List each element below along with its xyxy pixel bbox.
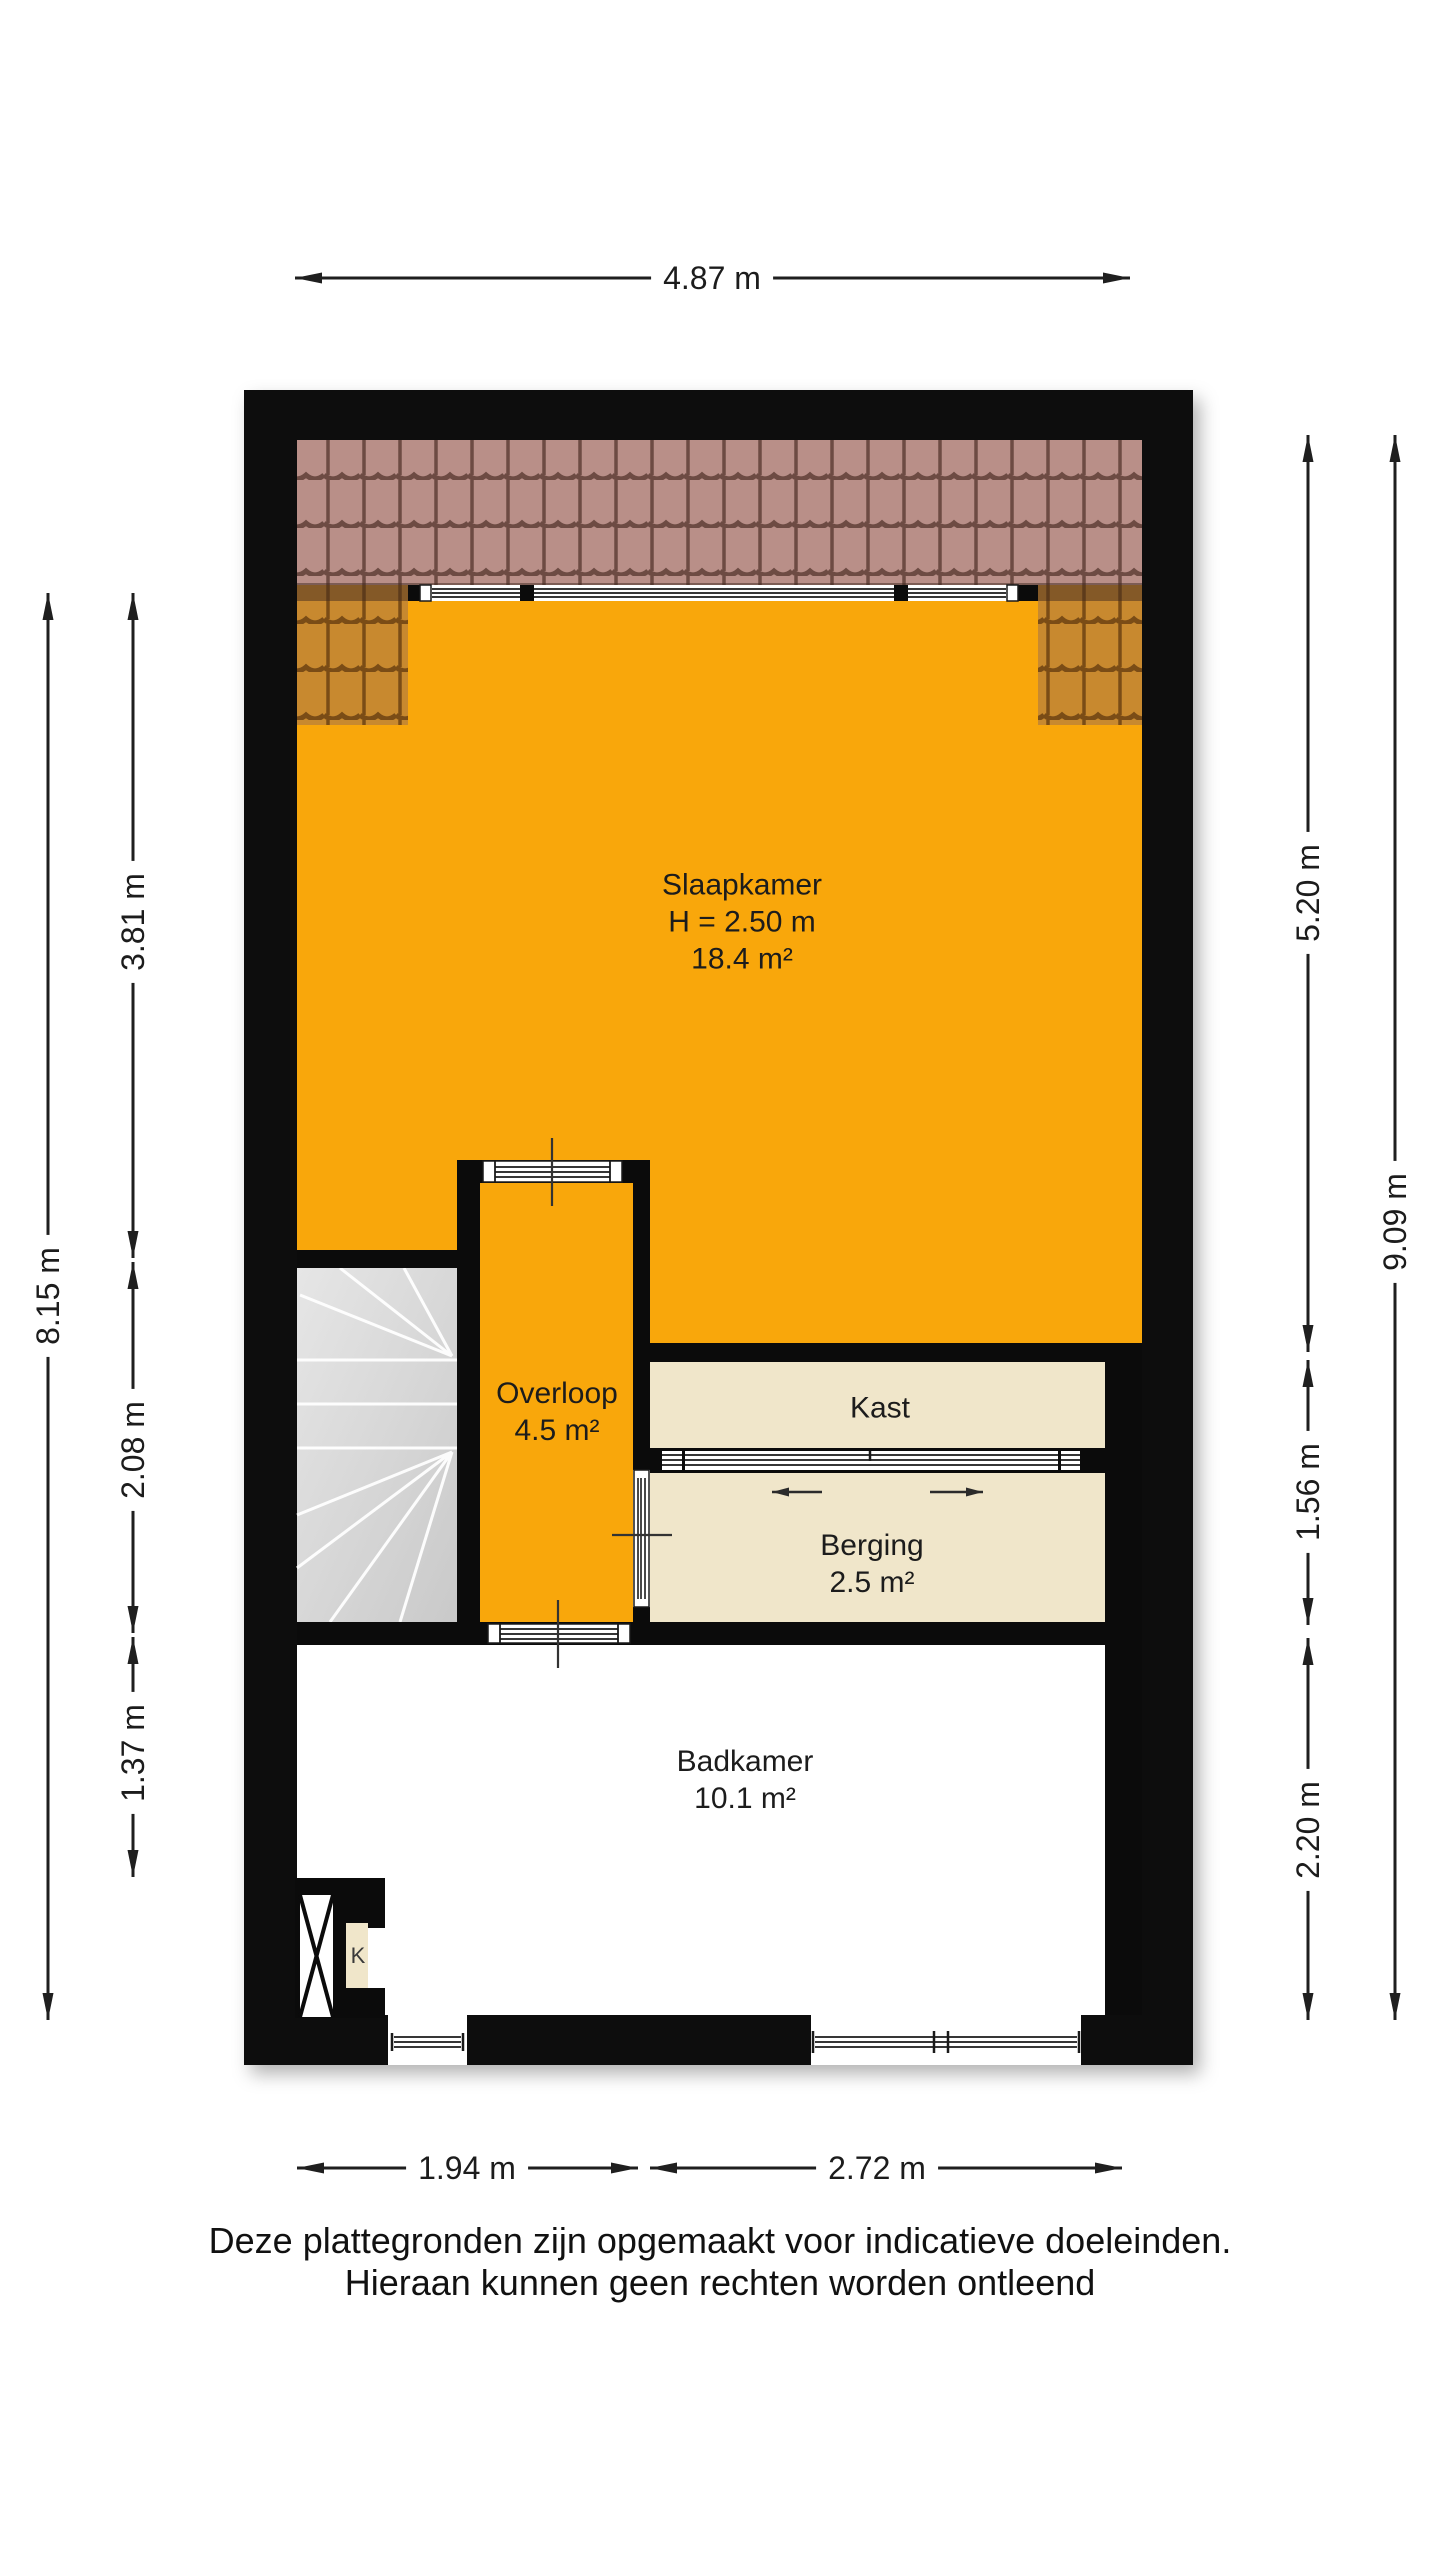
dim-bottom-seg1: 1.94 m bbox=[406, 2148, 528, 2188]
duct-shaft bbox=[295, 1878, 385, 2018]
berging-area: 2.5 m² bbox=[820, 1564, 923, 1601]
floorplan-drawing bbox=[0, 0, 1440, 2560]
slaapkamer-name: Slaapkamer bbox=[662, 867, 822, 904]
disclaimer-line2: Hieraan kunnen geen rechten worden ontle… bbox=[0, 2262, 1440, 2304]
overloop-label: Overloop 4.5 m² bbox=[496, 1375, 618, 1449]
staircase bbox=[297, 1268, 460, 1622]
dim-bottom-seg2: 2.72 m bbox=[816, 2148, 938, 2188]
dim-right-seg3: 2.20 m bbox=[1288, 1769, 1328, 1891]
disclaimer-line1: Deze plattegronden zijn opgemaakt voor i… bbox=[0, 2220, 1440, 2262]
dim-top-width: 4.87 m bbox=[651, 258, 773, 298]
kast-label: Kast bbox=[850, 1390, 910, 1427]
dim-right-seg1: 5.20 m bbox=[1288, 832, 1328, 954]
kast-top-wall bbox=[650, 1343, 1142, 1362]
dormer-windows bbox=[408, 585, 1038, 601]
dim-left-seg3: 1.37 m bbox=[113, 1692, 153, 1814]
stairs-top-wall bbox=[297, 1250, 460, 1268]
badkamer-name: Badkamer bbox=[677, 1743, 814, 1780]
dim-left-seg1: 3.81 m bbox=[113, 861, 153, 983]
badkamer-area: 10.1 m² bbox=[677, 1780, 814, 1817]
overloop-left-wall bbox=[457, 1183, 480, 1645]
overloop-area: 4.5 m² bbox=[496, 1412, 618, 1449]
dim-right-total: 9.09 m bbox=[1375, 1161, 1415, 1283]
berging-label: Berging 2.5 m² bbox=[820, 1527, 923, 1601]
roof-tiles-top bbox=[297, 440, 1142, 585]
slaapkamer-area: 18.4 m² bbox=[662, 941, 822, 978]
floorplan-page: Slaapkamer H = 2.50 m 18.4 m² Overloop 4… bbox=[0, 0, 1440, 2560]
badkamer-window-large bbox=[811, 2015, 1081, 2065]
dim-right-seg2: 1.56 m bbox=[1288, 1431, 1328, 1553]
badkamer-top-wall bbox=[297, 1622, 1105, 1645]
roof-tiles-left-strip bbox=[297, 585, 408, 725]
roof-tiles-right-strip bbox=[1038, 585, 1142, 725]
koker-label: K bbox=[351, 1943, 366, 1969]
overloop-name: Overloop bbox=[496, 1375, 618, 1412]
kast-name: Kast bbox=[850, 1390, 910, 1427]
slaapkamer-label: Slaapkamer H = 2.50 m 18.4 m² bbox=[662, 867, 822, 978]
berging-name: Berging bbox=[820, 1527, 923, 1564]
badkamer-window-small bbox=[388, 2015, 467, 2065]
slaapkamer-height: H = 2.50 m bbox=[662, 904, 822, 941]
badkamer-label: Badkamer 10.1 m² bbox=[677, 1743, 814, 1817]
sliding-door bbox=[662, 1451, 1080, 1470]
overloop-right-wall-upper bbox=[633, 1183, 650, 1470]
dim-left-seg2: 2.08 m bbox=[113, 1389, 153, 1511]
dim-left-total: 8.15 m bbox=[28, 1235, 68, 1357]
right-wall-lower bbox=[1105, 1343, 1142, 2015]
